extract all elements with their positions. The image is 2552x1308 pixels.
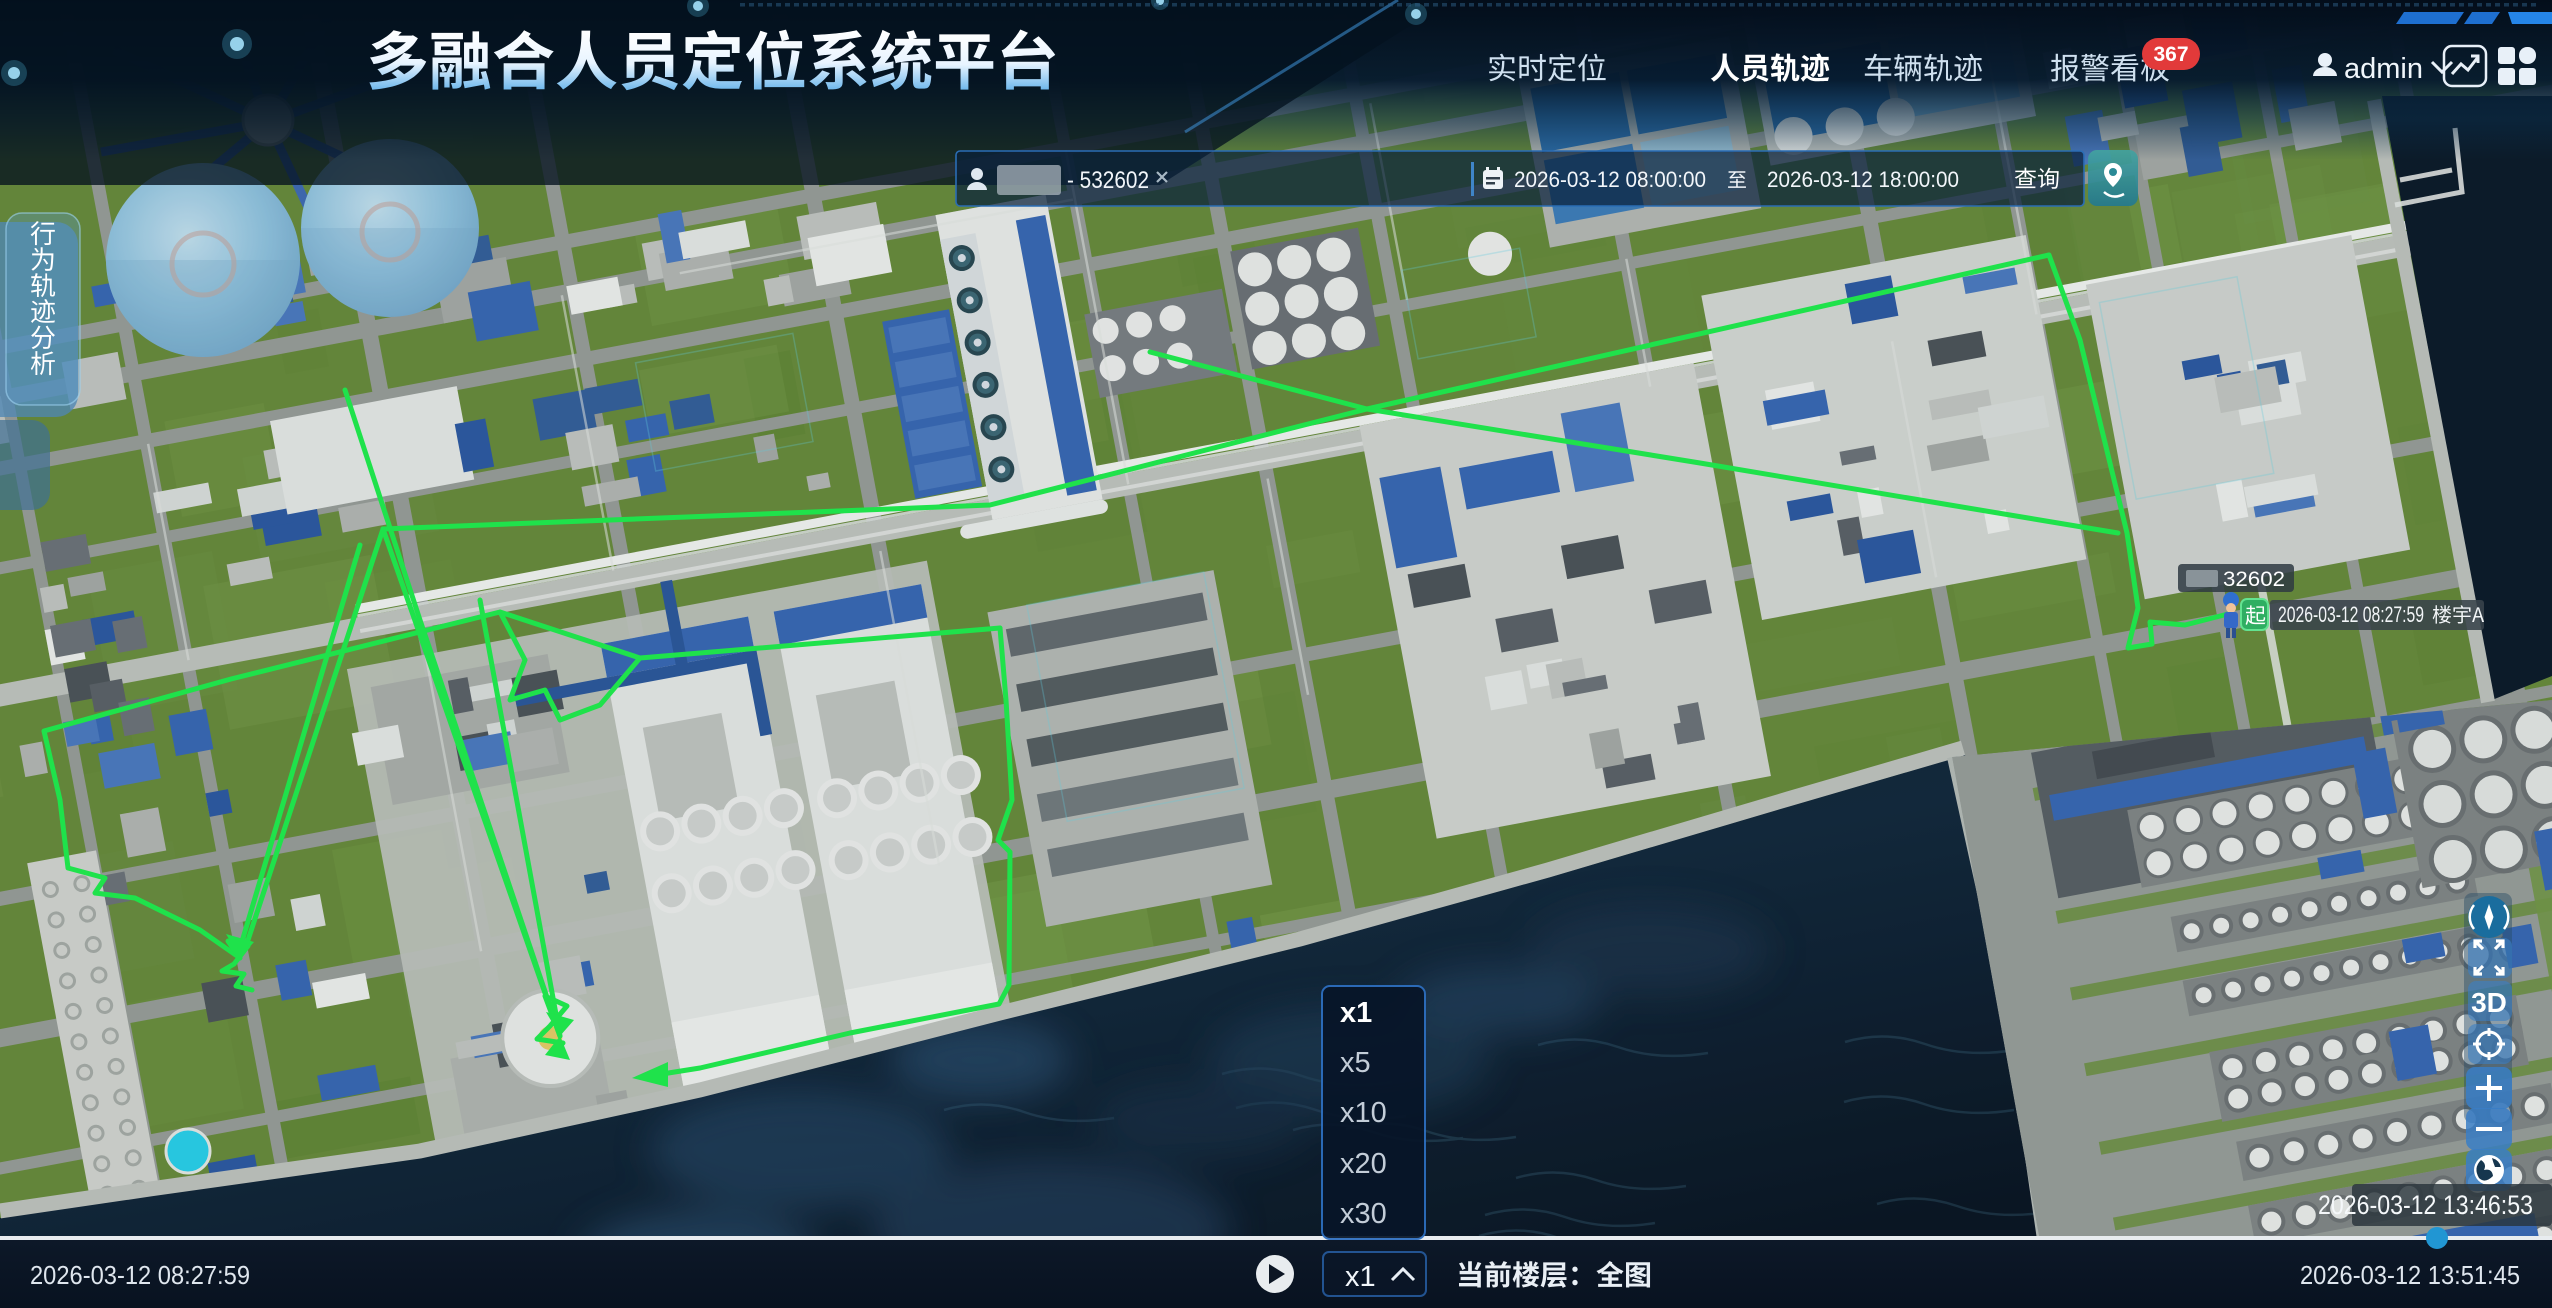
svg-text:admin: admin <box>2344 53 2423 85</box>
svg-text:367: 367 <box>2153 43 2188 66</box>
svg-text:32602: 32602 <box>2223 568 2285 591</box>
svg-text:2026-03-12 08:00:00: 2026-03-12 08:00:00 <box>1514 167 1706 192</box>
svg-text:x5: x5 <box>1340 1047 1371 1079</box>
svg-text:x1: x1 <box>1345 1261 1376 1293</box>
svg-text:3D: 3D <box>2471 987 2507 1018</box>
svg-text:2026-03-12 18:00:00: 2026-03-12 18:00:00 <box>1767 167 1959 192</box>
svg-text:2026-03-12 08:27:59: 2026-03-12 08:27:59 <box>2278 602 2424 627</box>
svg-text:x1: x1 <box>1340 997 1372 1029</box>
svg-text:x20: x20 <box>1340 1148 1387 1180</box>
svg-text:2026-03-12 13:51:45: 2026-03-12 13:51:45 <box>2300 1260 2520 1290</box>
svg-text:x30: x30 <box>1340 1198 1387 1230</box>
svg-text:- 532602: - 532602 <box>1067 167 1149 194</box>
svg-text:x10: x10 <box>1340 1097 1387 1129</box>
svg-text:2026-03-12 13:46:53: 2026-03-12 13:46:53 <box>2318 1190 2533 1220</box>
svg-text:2026-03-12 08:27:59: 2026-03-12 08:27:59 <box>30 1260 250 1290</box>
